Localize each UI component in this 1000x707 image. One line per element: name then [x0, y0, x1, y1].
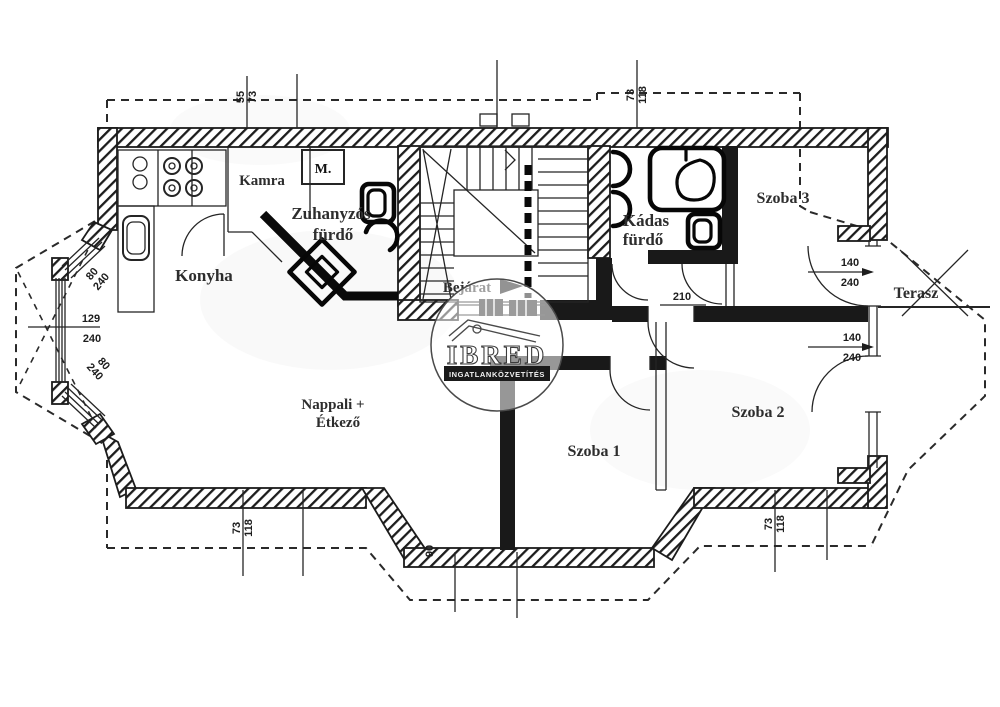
wall-right-upper [868, 128, 887, 240]
door-gap-szoba2 [648, 304, 694, 324]
wall-stair-left [398, 146, 420, 306]
wall-terrace-stub-top [838, 226, 870, 241]
door-arc-terrace-lower [812, 356, 868, 412]
terrace-wall-lines [869, 240, 877, 468]
wall-bottom-bay [404, 548, 654, 567]
watermark-subtitle: INGATLANKÖZVETÍTÉS [449, 370, 545, 379]
terrace [865, 240, 990, 468]
room-label-szoba2: Szoba 2 [732, 404, 785, 421]
room-label-szoba1: Szoba 1 [568, 443, 621, 460]
watermark-brand: IBRED [447, 340, 548, 370]
floor-plan-scan: M. [0, 0, 1000, 707]
dim-bottom-left-b: 118 [243, 519, 255, 537]
dim-bottom-left-a: 73 [231, 522, 243, 534]
dim-top-right-a: 73 [625, 89, 637, 101]
floor-plan-drawing: M. [0, 0, 1000, 707]
dim-bottom-right-b: 118 [775, 515, 787, 533]
room-label-zuhanyzos-1: Zuhanyzós [291, 204, 371, 223]
dim-bottom-right-a: 73 [763, 518, 775, 530]
room-label-terasz: Terasz [894, 285, 939, 302]
washing-machine-label: M. [315, 162, 332, 177]
wall-bottom-right [694, 488, 886, 508]
sink-bowl-icon [133, 157, 147, 171]
wall-bottom-left [126, 488, 366, 508]
room-label-kadas-1: Kádas [623, 211, 670, 230]
room-label-konyha: Konyha [175, 266, 233, 285]
dim-top-left-b: 73 [247, 91, 259, 103]
dim-terrace-lower-a: 140 [843, 332, 861, 344]
dim-bay-middle-b: 240 [83, 333, 101, 345]
wall-left-upper [98, 128, 117, 230]
wall-terrace-stub-bottom [838, 468, 870, 483]
dim-terrace-upper-b: 240 [841, 277, 859, 289]
stove-icon [164, 158, 202, 196]
dim-top-left-a: 55 [235, 91, 247, 103]
dim-door-height: 210 [673, 291, 691, 303]
room-label-nappali-2: Étkező [316, 414, 361, 431]
sink-bowl-icon [133, 175, 147, 189]
wall-kadas-bottom [648, 250, 738, 264]
dim-terrace-upper-a: 140 [841, 257, 859, 269]
watermark: IBRED INGATLANKÖZVETÍTÉS [431, 279, 563, 411]
room-label-szoba3: Szoba 3 [757, 190, 810, 207]
dim-terrace-lower-b: 240 [843, 352, 861, 364]
room-label-nappali-1: Nappali + [301, 397, 364, 413]
roof-vent-marks [480, 114, 529, 126]
door-arc-kitchen [182, 214, 224, 256]
washbasin-icon [613, 152, 630, 186]
room-label-kamra: Kamra [239, 173, 285, 189]
room-label-zuhanyzos-2: fürdő [313, 225, 354, 244]
dim-entry-width: 90 [424, 545, 436, 557]
door-gap-szoba1 [610, 354, 650, 372]
wall-stair-right [588, 146, 610, 258]
door-arc-kadas [612, 264, 648, 300]
dim-bay-middle-a: 129 [82, 313, 100, 325]
dim-top-right-b: 118 [637, 86, 649, 104]
arrowhead-icon [862, 268, 874, 276]
wall-stair-right-lower [596, 258, 612, 306]
wall-top [98, 128, 888, 147]
door-arc-terrace-upper [808, 246, 868, 306]
arrowhead-icon [862, 343, 874, 351]
room-label-kadas-2: fürdő [623, 230, 664, 249]
